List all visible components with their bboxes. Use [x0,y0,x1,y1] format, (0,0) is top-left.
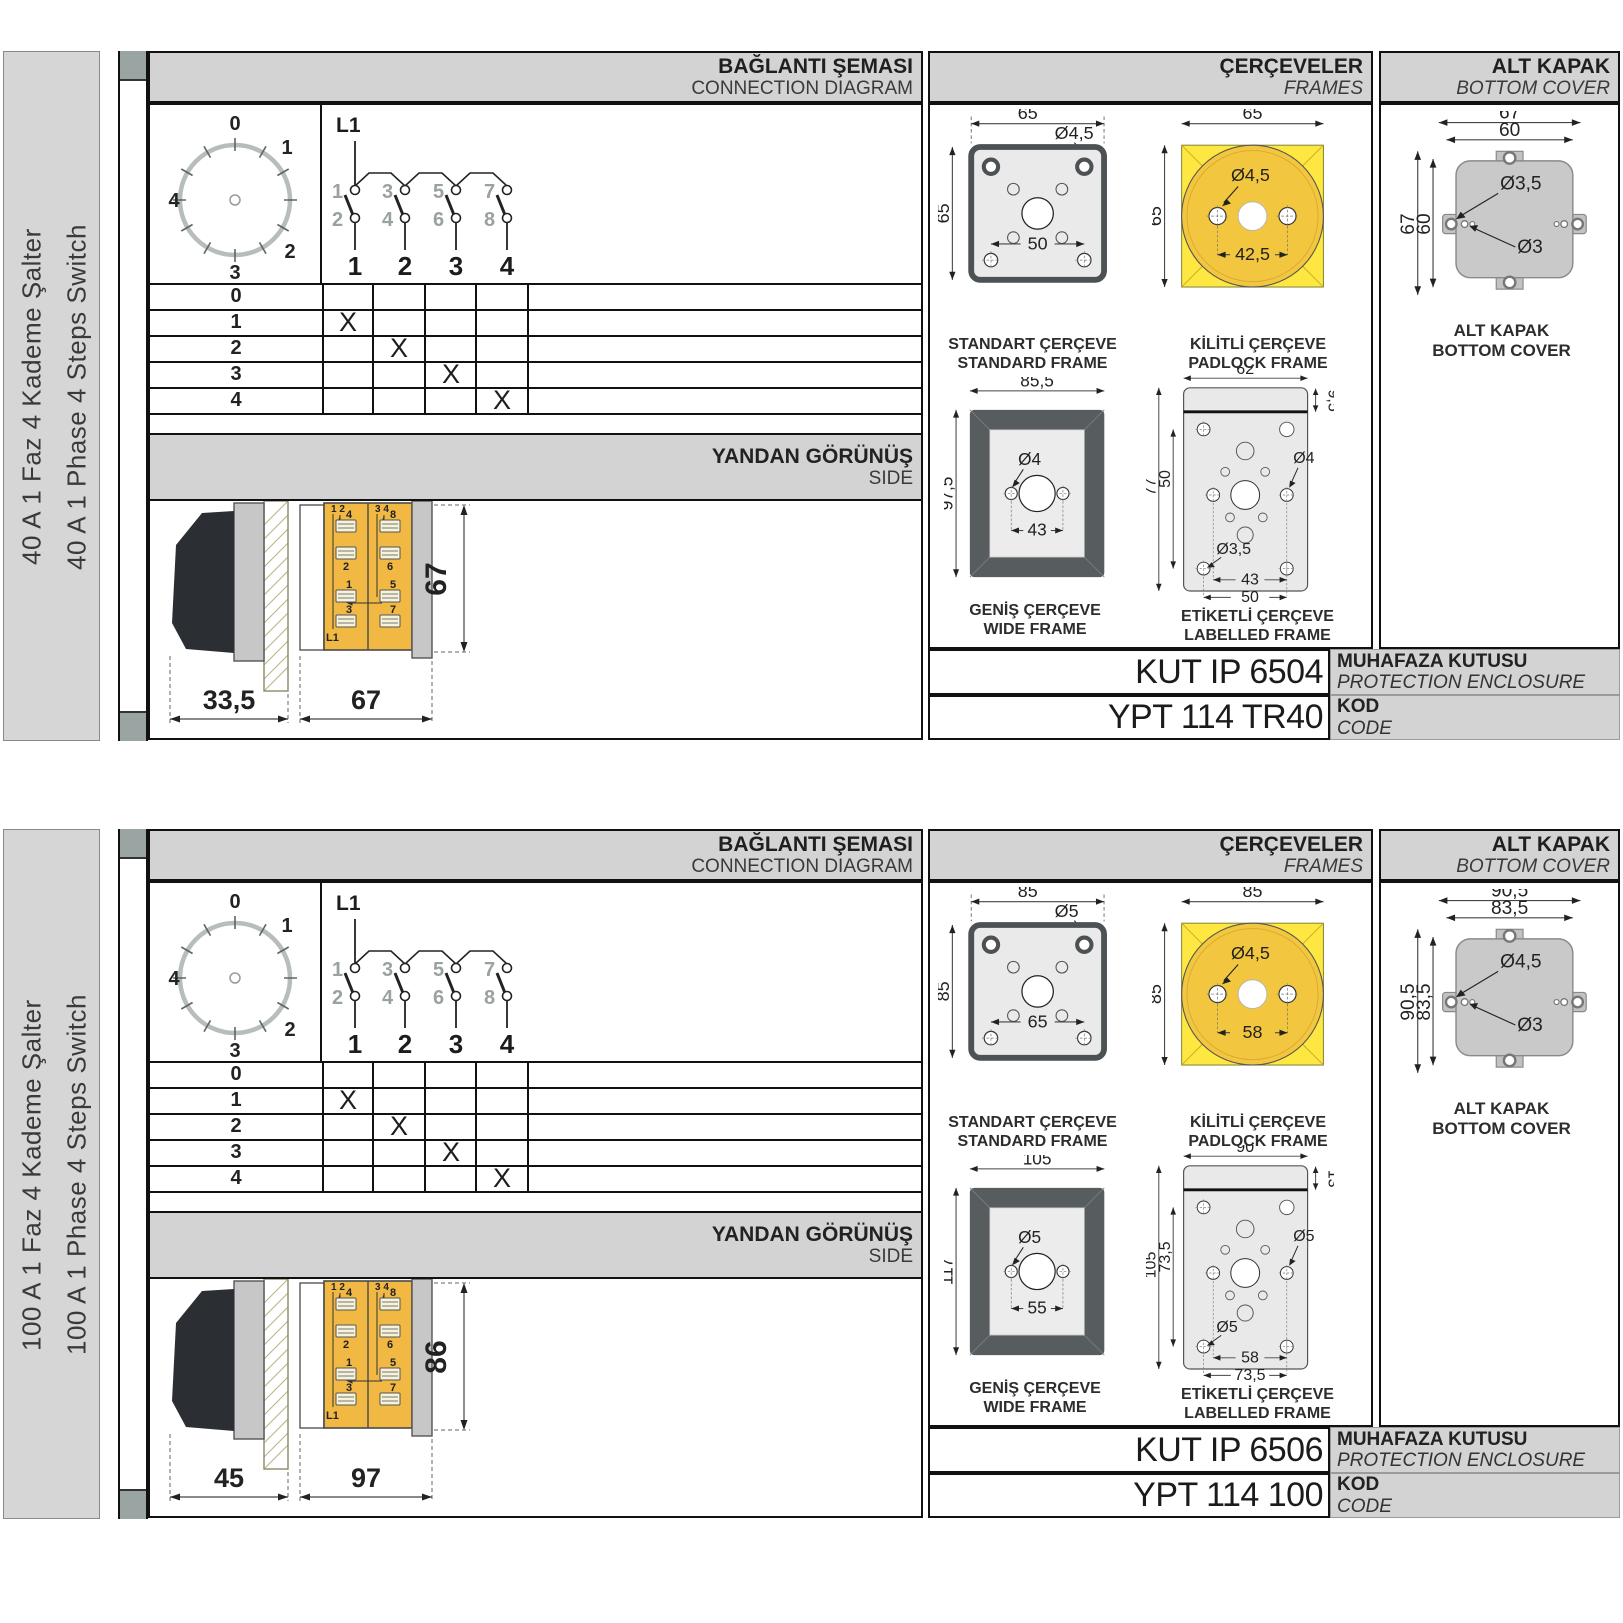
terminal-7-label: 7 [390,1382,396,1394]
contact-number-8: 8 [484,209,495,231]
standard-frame-height: 65 [938,203,953,223]
terminal-1-label: 1 [346,1357,352,1369]
product-code-label-tr: KOD [1337,1474,1619,1495]
terminal-8-label: 8 [390,1287,396,1299]
enclosure-label-tr: MUHAFAZA KUTUSU [1337,1429,1619,1450]
header-frames-tr: ÇERÇEVELER [1219,833,1363,857]
standard-frame-name-en: STANDARD FRAME [930,1132,1135,1151]
labelled-frame-spacing-inner: 43 [1241,572,1259,589]
standard-frame-drawing: 65 Ø4,5 65 50 [938,109,1122,334]
labelled-frame-strip: 13 [1324,1170,1334,1188]
product-section: 40 A 1 Faz 4 Kademe Şalter 40 A 1 Phase … [0,51,1623,741]
terminal-5-label: 5 [390,579,396,591]
contact-number-2: 2 [332,987,343,1009]
wide-frame-width: 105 [1023,1155,1052,1169]
cover-name-en: BOTTOM COVER [1381,341,1622,361]
side-view-drawing: 1 2 3 4 4 2 1 3 8 [150,1279,921,1517]
wide-frame-drawing: 85,5 97,5 Ø4 43 [944,377,1125,597]
output-2: 2 [398,251,412,281]
standard-frame-name: STANDART ÇERÇEVE STANDARD FRAME [930,1113,1135,1151]
cover-name-tr: ALT KAPAK [1381,321,1622,341]
labelled-frame-drawing: 62 9,5 77 50 Ø4 Ø3,5 [1146,367,1334,607]
labelled-frame-hole-span: 50 [1157,470,1174,488]
table-column-line [424,283,426,413]
side-view-drawing-area: 1 2 3 4 4 2 1 3 8 [150,501,921,739]
standard-frame-width: 85 [1018,887,1038,901]
standard-frame-name: STANDART ÇERÇEVE STANDARD FRAME [930,335,1135,373]
labelled-frame-hole-span: 73,5 [1157,1241,1174,1272]
labelled-frame-name: ETİKETLİ ÇERÇEVE LABELLED FRAME [1140,1385,1375,1423]
feed-line-label: L1 [336,892,361,915]
labelled-frame-name-tr: ETİKETLİ ÇERÇEVE [1140,607,1375,626]
spine-square-bottom [120,711,146,741]
position-row-label: 1 [150,1087,322,1113]
labelled-frame-name-tr: ETİKETLİ ÇERÇEVE [1140,1385,1375,1404]
dial-position-2: 2 [284,241,295,263]
cover-hole-tab: Ø3,5 [1500,174,1541,195]
header-connection-en: CONNECTION DIAGRAM [691,856,913,877]
dial-position-1: 1 [281,915,292,937]
terminal-pair-right: 3 4 [375,1282,389,1293]
feed-line-label: L1 [336,114,361,137]
padlock-frame-height: 85 [1152,984,1165,1004]
wide-frame-spacing: 55 [1028,1298,1047,1318]
terminal-2-label: 2 [343,1339,349,1351]
side-view-title-tr: YANDAN GÖRÜNÜŞ [712,445,913,469]
frames-panel: 65 Ø4,5 65 50 65 65 [928,103,1373,649]
dim-body-depth: 67 [351,685,381,715]
cover-name-en: BOTTOM COVER [1381,1119,1622,1139]
cover-height-inner: 60 [1414,213,1435,234]
labelled-frame-spacing-outer: 73,5 [1234,1367,1265,1384]
terminal-pair-left: 1 2 [331,504,345,515]
padlock-frame-spacing: 42,5 [1235,244,1270,264]
bottom-cover-panel: 67 60 67 60 Ø3,5 Ø3 [1379,103,1620,649]
header-connection-tr: BAĞLANTI ŞEMASI [718,55,913,79]
header-connection-diagram: BAĞLANTI ŞEMASI CONNECTION DIAGRAM [148,51,923,103]
contact-mark: X [426,361,476,387]
side-view-title-en: SIDE [869,1246,913,1267]
labelled-frame-name-en: LABELLED FRAME [1140,1404,1375,1423]
bottom-cover-drawing: 67 60 67 60 Ø3,5 Ø3 [1389,111,1614,317]
table-column-line [322,1061,324,1191]
contact-number-3: 3 [382,181,393,203]
side-view-header: YANDAN GÖRÜNÜŞ SIDE [150,1211,921,1279]
contact-number-8: 8 [484,987,495,1009]
side-view-header: YANDAN GÖRÜNÜŞ SIDE [150,433,921,501]
contact-schematic-cell: L1 1 3 5 7 2 4 6 8 1 [322,883,921,1061]
header-frames-en: FRAMES [1284,856,1363,877]
padlock-frame-width: 85 [1243,887,1263,901]
terminal-6-label: 6 [387,561,393,573]
output-1: 1 [348,251,362,281]
table-column-line [527,1061,529,1191]
contact-mark: X [477,387,527,413]
terminal-feed-label: L1 [326,1410,339,1422]
contact-mark: X [477,1165,527,1191]
side-view-title-tr: YANDAN GÖRÜNÜŞ [712,1223,913,1247]
spine-square-top [120,51,146,81]
wide-frame-hole: Ø5 [1018,1227,1041,1247]
wide-frame-name-en: WIDE FRAME [930,1398,1140,1417]
cover-hole-small: Ø3 [1517,1015,1543,1036]
product-title-english: 40 A 1 Phase 4 Steps Switch [56,52,98,742]
terminal-pair-right: 3 4 [375,504,389,515]
cover-hole-tab: Ø4,5 [1500,952,1541,973]
wide-frame-name-en: WIDE FRAME [930,620,1140,639]
bottom-cover-drawing: 90,5 83,5 90,5 83,5 Ø4,5 Ø3 [1389,889,1614,1095]
spine-square-bottom [120,1489,146,1519]
header-frames-tr: ÇERÇEVELER [1219,55,1363,79]
labelled-frame-spacing-outer: 50 [1241,589,1259,606]
labelled-frame-drawing: 90 13 105 73,5 Ø5 Ø5 [1146,1145,1334,1385]
terminal-2-label: 2 [343,561,349,573]
dim-body-height: 67 [420,562,453,595]
terminal-6-label: 6 [387,1339,393,1351]
header-bottom-cover: ALT KAPAK BOTTOM COVER [1379,829,1620,881]
enclosure-label: MUHAFAZA KUTUSU PROTECTION ENCLOSURE [1330,1427,1620,1473]
output-2: 2 [398,1029,412,1059]
contact-number-1: 1 [332,181,343,203]
contact-number-7: 7 [484,959,495,981]
header-connection-diagram: BAĞLANTI ŞEMASI CONNECTION DIAGRAM [148,829,923,881]
dial-position-0: 0 [229,113,240,135]
rotary-dial-diagram: 0 1 2 3 4 [150,105,320,281]
dim-knob-depth: 33,5 [203,685,256,715]
dial-position-0: 0 [229,891,240,913]
product-code: YPT 114 TR40 [928,695,1330,740]
dial-position-1: 1 [281,137,292,159]
standard-frame-spacing: 65 [1028,1011,1048,1031]
standard-frame-width: 65 [1018,109,1038,123]
contact-mark: X [323,1087,373,1113]
product-sidebar: 40 A 1 Faz 4 Kademe Şalter 40 A 1 Phase … [3,51,100,741]
enclosure-code: KUT IP 6504 [928,649,1330,695]
rotary-dial-diagram: 0 1 2 3 4 [150,883,320,1059]
wide-frame-name-tr: GENİŞ ÇERÇEVE [930,1379,1140,1398]
standard-frame-name-en: STANDARD FRAME [930,354,1135,373]
position-row-label: 0 [150,1061,322,1087]
terminal-3-label: 3 [346,1382,352,1394]
spine-column [118,51,148,741]
wide-frame-spacing: 43 [1028,520,1047,540]
contact-mark: X [426,1139,476,1165]
enclosure-label: MUHAFAZA KUTUSU PROTECTION ENCLOSURE [1330,649,1620,695]
standard-frame-name-tr: STANDART ÇERÇEVE [930,1113,1135,1132]
product-code-label-en: CODE [1337,1496,1619,1517]
contact-number-1: 1 [332,959,343,981]
padlock-frame-height: 65 [1152,206,1165,226]
product-code-label-en: CODE [1337,718,1619,739]
position-row-label: 4 [150,1165,322,1191]
contact-schematic-diagram: L1 1 3 5 7 2 4 6 8 1 [322,105,921,283]
labelled-frame-name-en: LABELLED FRAME [1140,626,1375,645]
dim-body-depth: 97 [351,1463,381,1493]
header-frames: ÇERÇEVELER FRAMES [928,829,1373,881]
contact-number-6: 6 [433,987,444,1009]
dim-knob-depth: 45 [214,1463,244,1493]
side-view-drawing-area: 1 2 3 4 4 2 1 3 8 [150,1279,921,1517]
contact-number-5: 5 [433,959,444,981]
wide-frame-name: GENİŞ ÇERÇEVE WIDE FRAME [930,601,1140,639]
contact-number-4: 4 [382,987,394,1009]
dial-position-2: 2 [284,1019,295,1041]
contact-number-2: 2 [332,209,343,231]
standard-frame-name-tr: STANDART ÇERÇEVE [930,335,1135,354]
terminal-4-label: 4 [346,1287,353,1299]
rotary-dial-cell: 0 1 2 3 4 [150,883,322,1061]
wide-frame-drawing: 105 117 Ø5 55 [944,1155,1125,1375]
dial-position-4: 4 [168,968,180,990]
terminal-pair-left: 1 2 [331,1282,345,1293]
padlock-frame-drawing: 85 85 Ø4,5 58 [1152,887,1336,1112]
header-cover-en: BOTTOM COVER [1456,78,1610,99]
enclosure-label-tr: MUHAFAZA KUTUSU [1337,651,1619,672]
padlock-frame-name-tr: KİLİTLİ ÇERÇEVE [1148,1113,1368,1132]
wide-frame-width: 85,5 [1020,377,1054,391]
dial-position-4: 4 [168,190,180,212]
standard-frame-spacing: 50 [1028,233,1048,253]
contact-mark: X [374,1113,424,1139]
position-row-label: 3 [150,1139,322,1165]
side-view-title-en: SIDE [869,468,913,489]
contact-mark: X [374,335,424,361]
spine-column [118,829,148,1519]
position-row-label: 1 [150,309,322,335]
terminal-3-label: 3 [346,604,352,616]
enclosure-code: KUT IP 6506 [928,1427,1330,1473]
table-column-line [322,283,324,413]
contact-schematic-diagram: L1 1 3 5 7 2 4 6 8 1 [322,883,921,1061]
position-row-label: 4 [150,387,322,413]
standard-frame-drawing: 85 Ø5 85 65 [938,887,1122,1112]
contact-number-3: 3 [382,959,393,981]
contact-number-6: 6 [433,209,444,231]
labelled-frame-spacing-inner: 58 [1241,1350,1259,1367]
enclosure-label-en: PROTECTION ENCLOSURE [1337,1450,1619,1471]
padlock-frame-drawing: 65 65 Ø4,5 42,5 [1152,109,1336,334]
labelled-frame-hole-right: Ø5 [1293,1228,1314,1245]
table-line [150,413,921,415]
padlock-frame-spacing: 58 [1243,1022,1263,1042]
connection-diagram-panel: 0 1 2 3 4 L1 1 [148,103,923,740]
product-code: YPT 114 100 [928,1473,1330,1518]
enclosure-label-en: PROTECTION ENCLOSURE [1337,672,1619,693]
output-4: 4 [500,1029,515,1059]
cover-hole-small: Ø3 [1517,237,1543,258]
dial-position-3: 3 [229,1040,240,1059]
contact-mark: X [323,309,373,335]
terminal-8-label: 8 [390,509,396,521]
position-row-label: 3 [150,361,322,387]
side-view-drawing: 1 2 3 4 4 2 1 3 8 [150,501,921,739]
wide-frame-name: GENİŞ ÇERÇEVE WIDE FRAME [930,1379,1140,1417]
contact-schematic-cell: L1 1 3 5 7 2 4 6 8 1 [322,105,921,283]
product-sidebar: 100 A 1 Faz 4 Kademe Şalter 100 A 1 Phas… [3,829,100,1519]
product-code-label: KOD CODE [1330,1473,1620,1518]
spine-square-top [120,829,146,859]
padlock-frame-hole: Ø4,5 [1231,165,1270,185]
labelled-frame-hole-left: Ø3,5 [1216,541,1251,558]
position-row-label: 0 [150,283,322,309]
dial-position-3: 3 [229,262,240,281]
header-frames: ÇERÇEVELER FRAMES [928,51,1373,103]
table-column-line [527,283,529,413]
output-1: 1 [348,1029,362,1059]
connection-diagram-panel: 0 1 2 3 4 L1 1 [148,881,923,1518]
header-frames-en: FRAMES [1284,78,1363,99]
cover-name: ALT KAPAK BOTTOM COVER [1381,1099,1622,1140]
product-code-label-tr: KOD [1337,696,1619,717]
labelled-frame-hole-left: Ø5 [1216,1319,1237,1336]
labelled-frame-hole-right: Ø4 [1293,450,1314,467]
cover-height-inner: 83,5 [1414,983,1435,1020]
header-bottom-cover: ALT KAPAK BOTTOM COVER [1379,51,1620,103]
table-column-line [424,1061,426,1191]
wide-frame-hole: Ø4 [1018,449,1041,469]
standard-frame-hole: Ø4,5 [1055,123,1094,143]
bottom-cover-panel: 90,5 83,5 90,5 83,5 Ø4,5 Ø3 [1379,881,1620,1427]
standard-frame-height: 85 [938,981,953,1001]
padlock-frame-hole: Ø4,5 [1231,943,1270,963]
labelled-frame-strip: 9,5 [1324,389,1334,411]
product-title-english: 100 A 1 Phase 4 Steps Switch [56,830,98,1520]
table-line [150,1191,921,1193]
header-cover-tr: ALT KAPAK [1492,833,1610,857]
output-4: 4 [500,251,515,281]
frames-panel: 85 Ø5 85 65 85 85 [928,881,1373,1427]
terminal-7-label: 7 [390,604,396,616]
standard-frame-hole: Ø5 [1055,901,1079,921]
output-3: 3 [449,251,463,281]
contact-number-7: 7 [484,181,495,203]
header-cover-en: BOTTOM COVER [1456,856,1610,877]
padlock-frame-name-tr: KİLİTLİ ÇERÇEVE [1148,335,1368,354]
header-connection-tr: BAĞLANTI ŞEMASI [718,833,913,857]
labelled-frame-width: 62 [1236,367,1254,378]
position-row-label: 2 [150,1113,322,1139]
position-row-label: 2 [150,335,322,361]
padlock-frame-width: 65 [1243,109,1263,123]
contact-number-4: 4 [382,209,394,231]
header-cover-tr: ALT KAPAK [1492,55,1610,79]
cover-width-inner: 60 [1499,120,1520,141]
cover-width-inner: 83,5 [1491,898,1528,919]
product-code-label: KOD CODE [1330,695,1620,740]
product-title-turkish: 100 A 1 Faz 4 Kademe Şalter [10,830,54,1520]
labelled-frame-width: 90 [1236,1145,1254,1156]
header-connection-en: CONNECTION DIAGRAM [691,78,913,99]
wide-frame-height: 97,5 [944,477,957,511]
terminal-1-label: 1 [346,579,352,591]
product-title-turkish: 40 A 1 Faz 4 Kademe Şalter [10,52,54,742]
contact-number-5: 5 [433,181,444,203]
wide-frame-name-tr: GENİŞ ÇERÇEVE [930,601,1140,620]
catalog-page: 40 A 1 Faz 4 Kademe Şalter 40 A 1 Phase … [0,0,1623,1623]
cover-name: ALT KAPAK BOTTOM COVER [1381,321,1622,362]
wide-frame-height: 117 [944,1258,957,1285]
cover-name-tr: ALT KAPAK [1381,1099,1622,1119]
terminal-4-label: 4 [346,509,353,521]
labelled-frame-name: ETİKETLİ ÇERÇEVE LABELLED FRAME [1140,607,1375,645]
terminal-5-label: 5 [390,1357,396,1369]
output-3: 3 [449,1029,463,1059]
rotary-dial-cell: 0 1 2 3 4 [150,105,322,283]
terminal-feed-label: L1 [326,632,339,644]
dim-body-height: 86 [420,1340,453,1373]
product-section: 100 A 1 Faz 4 Kademe Şalter 100 A 1 Phas… [0,829,1623,1519]
